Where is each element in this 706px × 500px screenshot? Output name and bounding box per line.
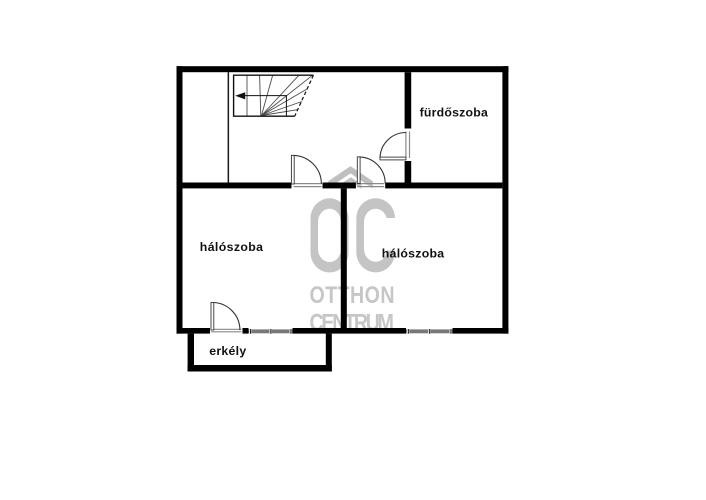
svg-text:OTTHON: OTTHON <box>310 281 395 309</box>
svg-text:erkély: erkély <box>209 344 246 358</box>
svg-text:hálószoba: hálószoba <box>382 247 444 261</box>
svg-text:hálószoba: hálószoba <box>200 240 263 254</box>
svg-text:fürdőszoba: fürdőszoba <box>420 106 488 120</box>
